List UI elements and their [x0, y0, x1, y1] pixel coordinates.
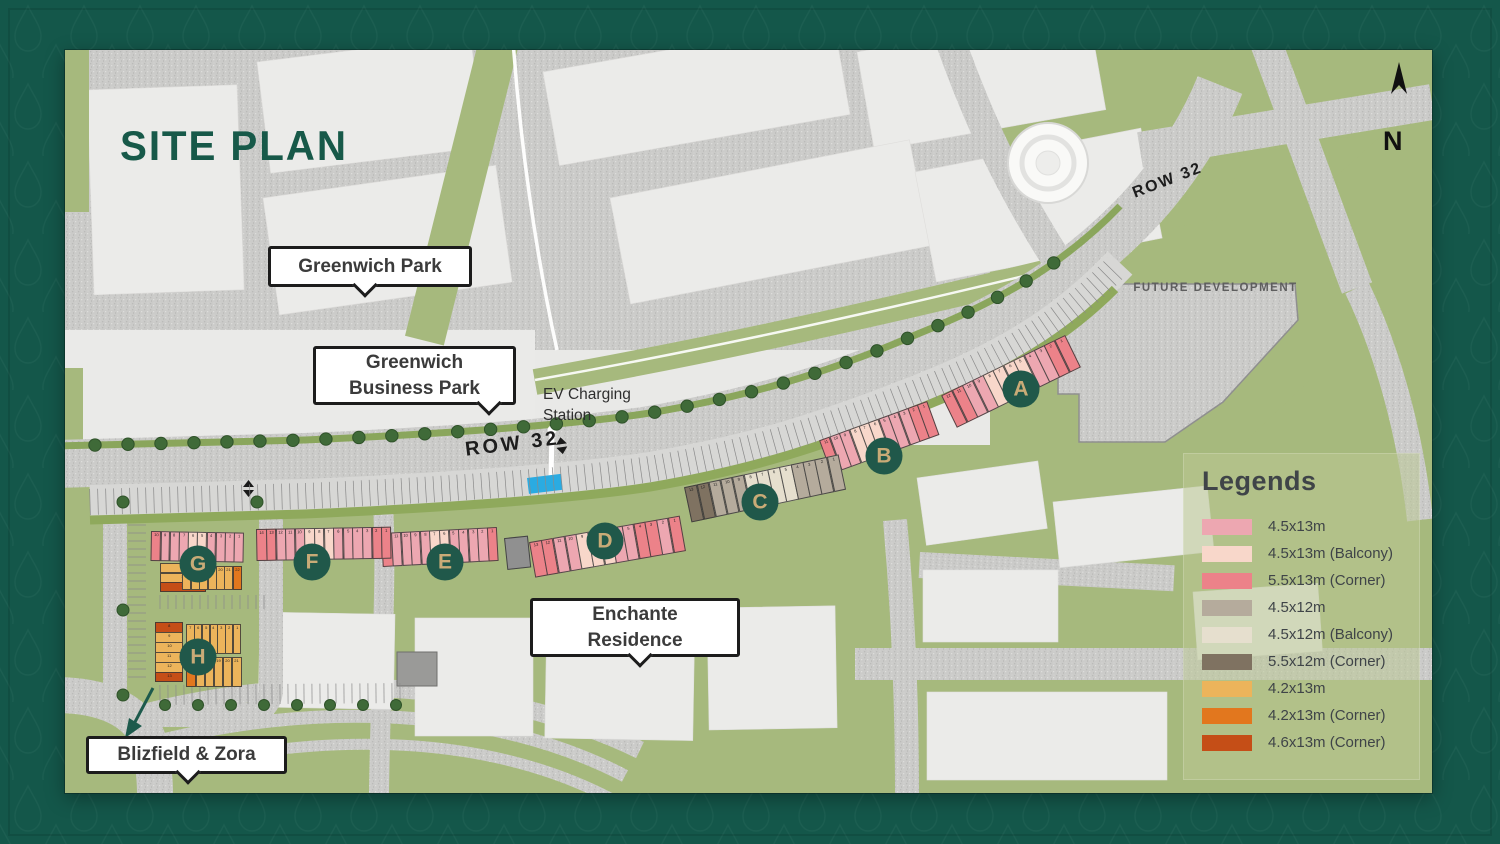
- unit-number: 5: [627, 527, 632, 544]
- tree-icon: [89, 439, 101, 451]
- unit-number: 9: [164, 533, 166, 547]
- tree-icon: [287, 434, 299, 446]
- unit-number: 4: [638, 525, 643, 542]
- callout-greenwich-park: Greenwich Park: [268, 246, 472, 287]
- tree-icon: [713, 393, 725, 405]
- tree-icon: [386, 430, 398, 442]
- unit-number: 10: [404, 534, 409, 550]
- unit-number: 5: [205, 626, 207, 640]
- unit-number: 11: [557, 539, 564, 556]
- legend-swatch: [1202, 519, 1252, 535]
- unit-number: 6: [337, 530, 339, 545]
- tree-icon: [391, 700, 402, 711]
- unit-number: 12: [545, 541, 552, 558]
- legend-label: 4.5x12m: [1268, 599, 1326, 616]
- legend-label: 4.2x13m (Corner): [1268, 707, 1386, 724]
- unit-number: 2: [228, 626, 230, 640]
- tree-icon: [745, 386, 757, 398]
- tree-icon: [292, 700, 303, 711]
- unit-number: 10: [167, 644, 171, 648]
- unit-number: 2: [820, 460, 826, 477]
- unit-number: 1: [832, 457, 838, 474]
- legend-row: 4.5x12m (Balcony): [1202, 621, 1419, 648]
- tree-icon: [962, 306, 974, 318]
- unit-cell: 22: [233, 566, 242, 590]
- site-plan-page: { "title": { "text": "SITE PLAN" }, "com…: [0, 0, 1500, 844]
- unit-number: 11: [394, 534, 399, 550]
- unit-number: 1: [238, 535, 240, 549]
- tree-icon: [451, 425, 463, 437]
- unit-number: 4: [796, 465, 802, 482]
- unit-number: 21: [234, 659, 238, 673]
- tree-icon: [221, 436, 233, 448]
- block-badge-F: F: [294, 544, 331, 581]
- unit-number: 8: [424, 533, 427, 549]
- unit-number: 7: [183, 534, 185, 548]
- ev-charging-label: EV Charging Station: [543, 384, 655, 427]
- unit-number: 3: [220, 626, 222, 640]
- unit-number: 2: [229, 534, 231, 548]
- unit-number: 3: [472, 530, 475, 546]
- unit-number: 9: [414, 533, 417, 549]
- legend-swatch: [1202, 681, 1252, 697]
- tree-icon: [681, 400, 693, 412]
- block-badge-E: E: [427, 544, 464, 581]
- legend-label: 4.2x13m: [1268, 680, 1326, 697]
- block-badge-C: C: [742, 484, 779, 521]
- tree-icon: [358, 700, 369, 711]
- legend-swatch: [1202, 627, 1252, 643]
- unit-number: 6: [773, 470, 779, 487]
- tree-icon: [117, 496, 129, 508]
- legend-row: 5.5x12m (Corner): [1202, 648, 1419, 675]
- callout-greenwich-park-label: Greenwich Park: [298, 254, 442, 280]
- unit-number: 21: [227, 568, 231, 579]
- unit-number: 19: [216, 659, 220, 673]
- callout-greenwich-business-park: Greenwich Business Park: [313, 346, 516, 405]
- roundabout: [1008, 123, 1088, 203]
- legend-row: 4.2x13m: [1202, 675, 1419, 702]
- legend-row: 5.5x13m (Corner): [1202, 567, 1419, 594]
- tree-icon: [932, 319, 944, 331]
- tree-icon: [122, 438, 134, 450]
- unit-number: 7: [328, 530, 330, 545]
- unit-number: 11: [288, 530, 292, 545]
- legend-swatch: [1202, 600, 1252, 616]
- future-development-label: FUTURE DEVELOPMENT: [1123, 282, 1308, 294]
- unit-number: 4: [210, 534, 212, 548]
- tree-icon: [193, 700, 204, 711]
- unit-number: 13: [167, 674, 171, 678]
- legend-panel: Legends 4.5x13m4.5x13m (Balcony)5.5x13m …: [1183, 453, 1420, 780]
- unit-number: 3: [366, 529, 368, 544]
- tree-icon: [259, 700, 270, 711]
- north-label: N: [1383, 126, 1403, 157]
- unit-cell: 1: [233, 624, 241, 654]
- legend-label: 4.5x13m: [1268, 518, 1326, 535]
- unit-number: 10: [298, 530, 303, 545]
- tree-icon: [226, 700, 237, 711]
- unit-number: 10: [724, 480, 732, 497]
- unit-number: 10: [154, 533, 159, 547]
- unit-number: 2: [481, 530, 484, 546]
- tree-icon: [809, 367, 821, 379]
- legend-swatch: [1202, 735, 1252, 751]
- legend-items: 4.5x13m4.5x13m (Balcony)5.5x13m (Corner)…: [1202, 513, 1419, 756]
- legend-label: 4.6x13m (Corner): [1268, 734, 1386, 751]
- tree-icon: [1048, 257, 1060, 269]
- unit-number: 2: [376, 529, 378, 544]
- tree-icon: [901, 332, 913, 344]
- callout-blizfield-zora: Blizfield & Zora: [86, 736, 287, 774]
- unit-number: 1: [236, 626, 238, 640]
- unit-number: 10: [568, 537, 575, 554]
- unit-number: 20: [225, 659, 229, 673]
- tree-icon: [117, 689, 129, 701]
- unit-cell: 21: [232, 657, 242, 687]
- legend-row: 4.5x12m: [1202, 594, 1419, 621]
- block-badge-A: A: [1003, 371, 1040, 408]
- legend-title: Legends: [1202, 466, 1419, 497]
- legend-label: 5.5x13m (Corner): [1268, 572, 1386, 589]
- block-badge-H: H: [180, 639, 217, 676]
- tree-icon: [871, 345, 883, 357]
- tree-icon: [484, 423, 496, 435]
- unit-number: 7: [189, 626, 191, 640]
- unit-number: 9: [737, 477, 743, 494]
- unit-number: 3: [219, 534, 221, 548]
- unit-number: 4: [213, 626, 215, 640]
- unit-number: 9: [581, 535, 586, 552]
- unit-number: 13: [534, 543, 541, 560]
- tree-icon: [1020, 275, 1032, 287]
- callout-enchante-residence: Enchante Residence: [530, 598, 740, 657]
- unit-cell: 1: [234, 532, 244, 562]
- page-title: SITE PLAN: [120, 122, 348, 170]
- unit-number: 12: [167, 664, 171, 668]
- unit-cell: [504, 536, 531, 570]
- block-badge-D: D: [587, 523, 624, 560]
- tree-icon: [840, 356, 852, 368]
- legend-row: 4.6x13m (Corner): [1202, 729, 1419, 756]
- tree-icon: [160, 700, 171, 711]
- unit-number: 3: [650, 522, 655, 539]
- legend-swatch: [1202, 546, 1252, 562]
- unit-number: 9: [168, 634, 170, 638]
- unit-number: 20: [218, 568, 222, 579]
- legend-row: 4.5x13m: [1202, 513, 1419, 540]
- tree-icon: [419, 428, 431, 440]
- legend-swatch: [1202, 708, 1252, 724]
- legend-label: 4.5x12m (Balcony): [1268, 626, 1393, 643]
- legend-label: 4.5x13m (Balcony): [1268, 545, 1393, 562]
- unit-number: 22: [235, 568, 239, 579]
- unit-number: 1: [1059, 339, 1068, 355]
- utility-box: [397, 652, 437, 686]
- block-badge-G: G: [180, 546, 217, 583]
- green-left-strip: [65, 50, 89, 212]
- unit-cell: 13: [155, 672, 183, 683]
- tree-icon: [254, 435, 266, 447]
- unit-number: 9: [308, 530, 310, 545]
- tree-icon: [251, 496, 263, 508]
- unit-number: 13: [689, 487, 697, 504]
- unit-number: 4: [356, 529, 358, 544]
- unit-number: 6: [197, 626, 199, 640]
- site-plan-map: SITE PLAN Greenwich Park Greenwich Busin…: [65, 50, 1432, 793]
- tree-icon: [320, 433, 332, 445]
- unit-number: 14: [259, 531, 264, 546]
- tree-icon: [325, 700, 336, 711]
- unit-number: 5: [785, 467, 791, 484]
- tree-icon: [117, 604, 129, 616]
- legend-row: 4.2x13m (Corner): [1202, 702, 1419, 729]
- unit-number: 8: [318, 530, 320, 545]
- tree-icon: [155, 437, 167, 449]
- unit-number: 1: [922, 404, 930, 420]
- unit-number: 1: [385, 529, 387, 544]
- unit-number: 13: [269, 531, 274, 546]
- callout-greenwich-business-park-label: Greenwich Business Park: [344, 350, 485, 401]
- unit-number: 5: [347, 529, 349, 544]
- unit-cell: 1: [487, 527, 499, 561]
- tree-icon: [991, 291, 1003, 303]
- unit-number: 1: [673, 518, 678, 535]
- green-left-strip2: [65, 368, 83, 448]
- legend-swatch: [1202, 654, 1252, 670]
- unit-number: 3: [808, 462, 814, 479]
- unit-cell: 1: [381, 527, 392, 559]
- unit-number: 4: [462, 531, 465, 547]
- unit-number: 11: [167, 654, 171, 658]
- tree-icon: [777, 377, 789, 389]
- tree-icon: [188, 436, 200, 448]
- legend-swatch: [1202, 573, 1252, 589]
- unit-number: 2: [661, 520, 666, 537]
- unit-number: 1: [491, 529, 494, 545]
- unit-number: 11: [713, 482, 720, 499]
- legend-row: 4.5x13m (Balcony): [1202, 540, 1419, 567]
- unit-number: 8: [173, 533, 175, 547]
- tree-icon: [353, 431, 365, 443]
- unit-number: 8: [168, 624, 170, 628]
- legend-label: 5.5x12m (Corner): [1268, 653, 1386, 670]
- unit-number: 12: [701, 485, 709, 502]
- unit-row-utility: [505, 536, 532, 570]
- unit-number: 12: [278, 531, 283, 546]
- block-badge-B: B: [866, 438, 903, 475]
